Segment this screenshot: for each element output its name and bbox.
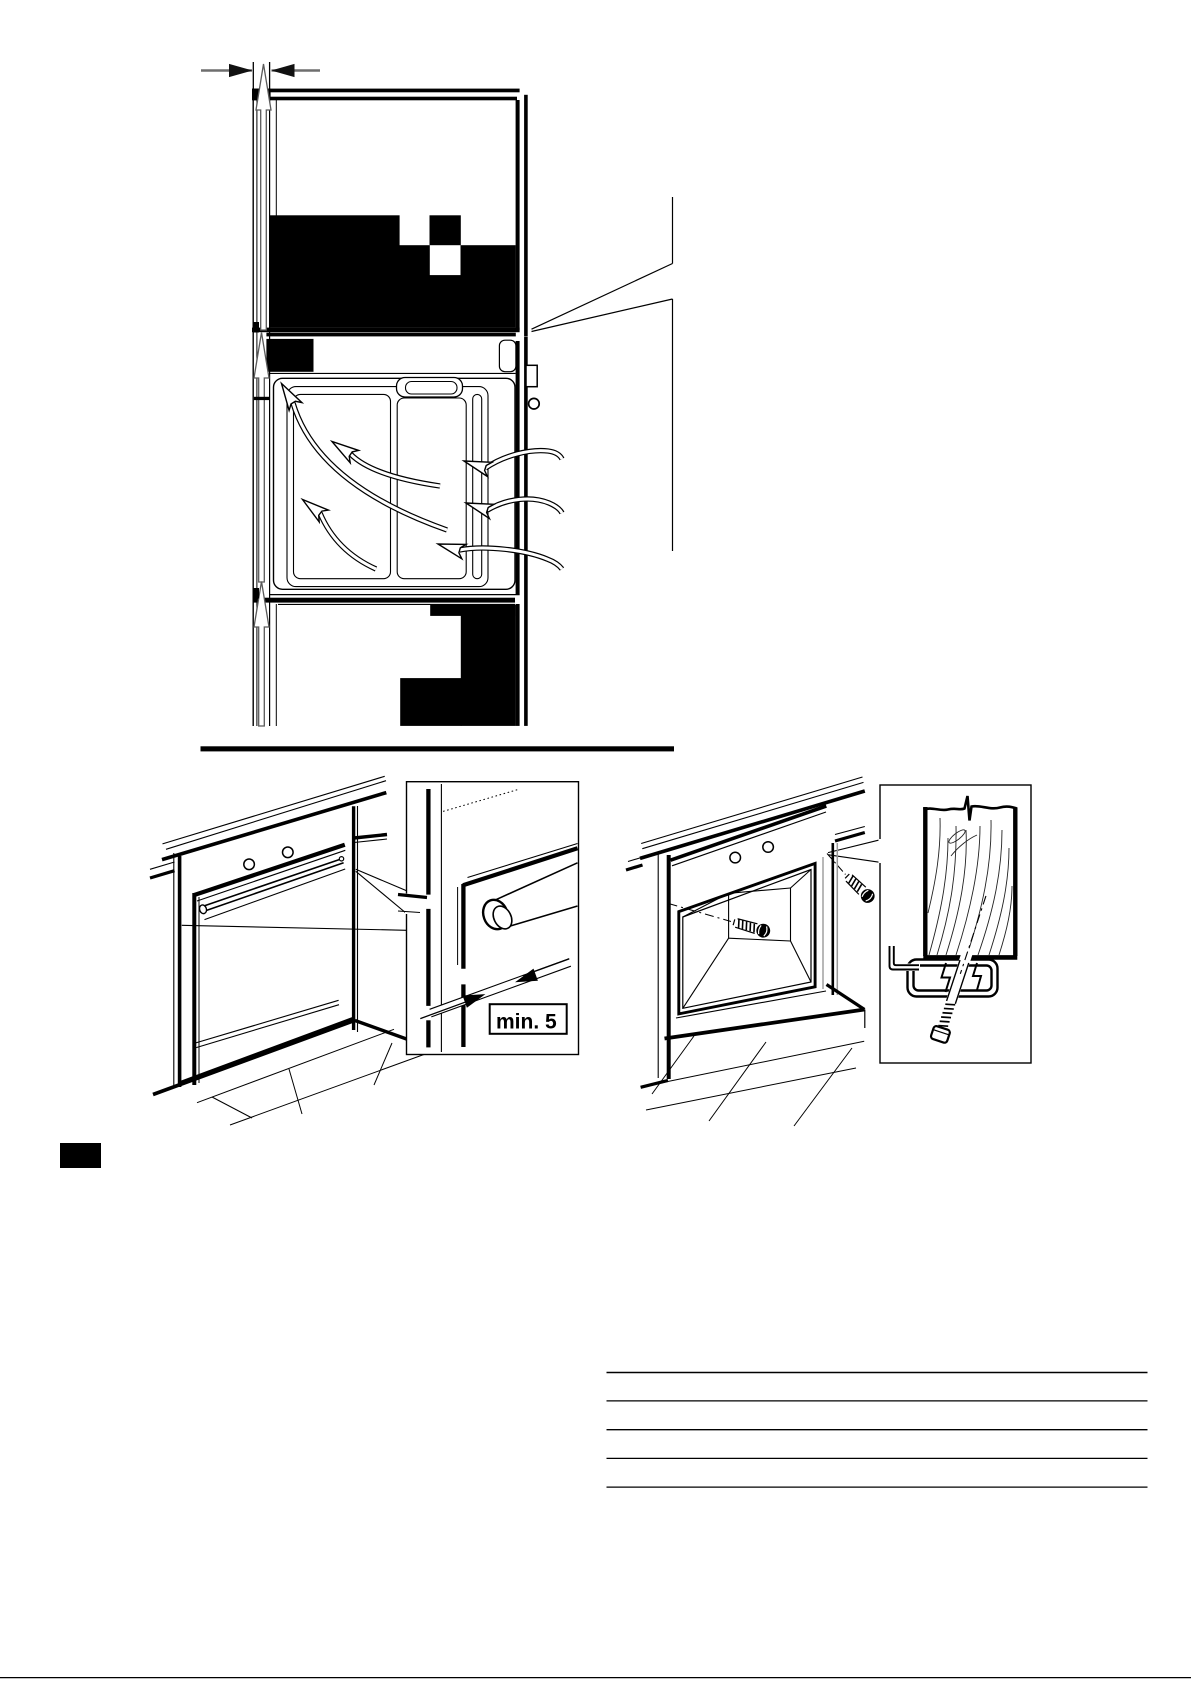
svg-text:min. 5: min. 5 <box>496 1011 557 1034</box>
